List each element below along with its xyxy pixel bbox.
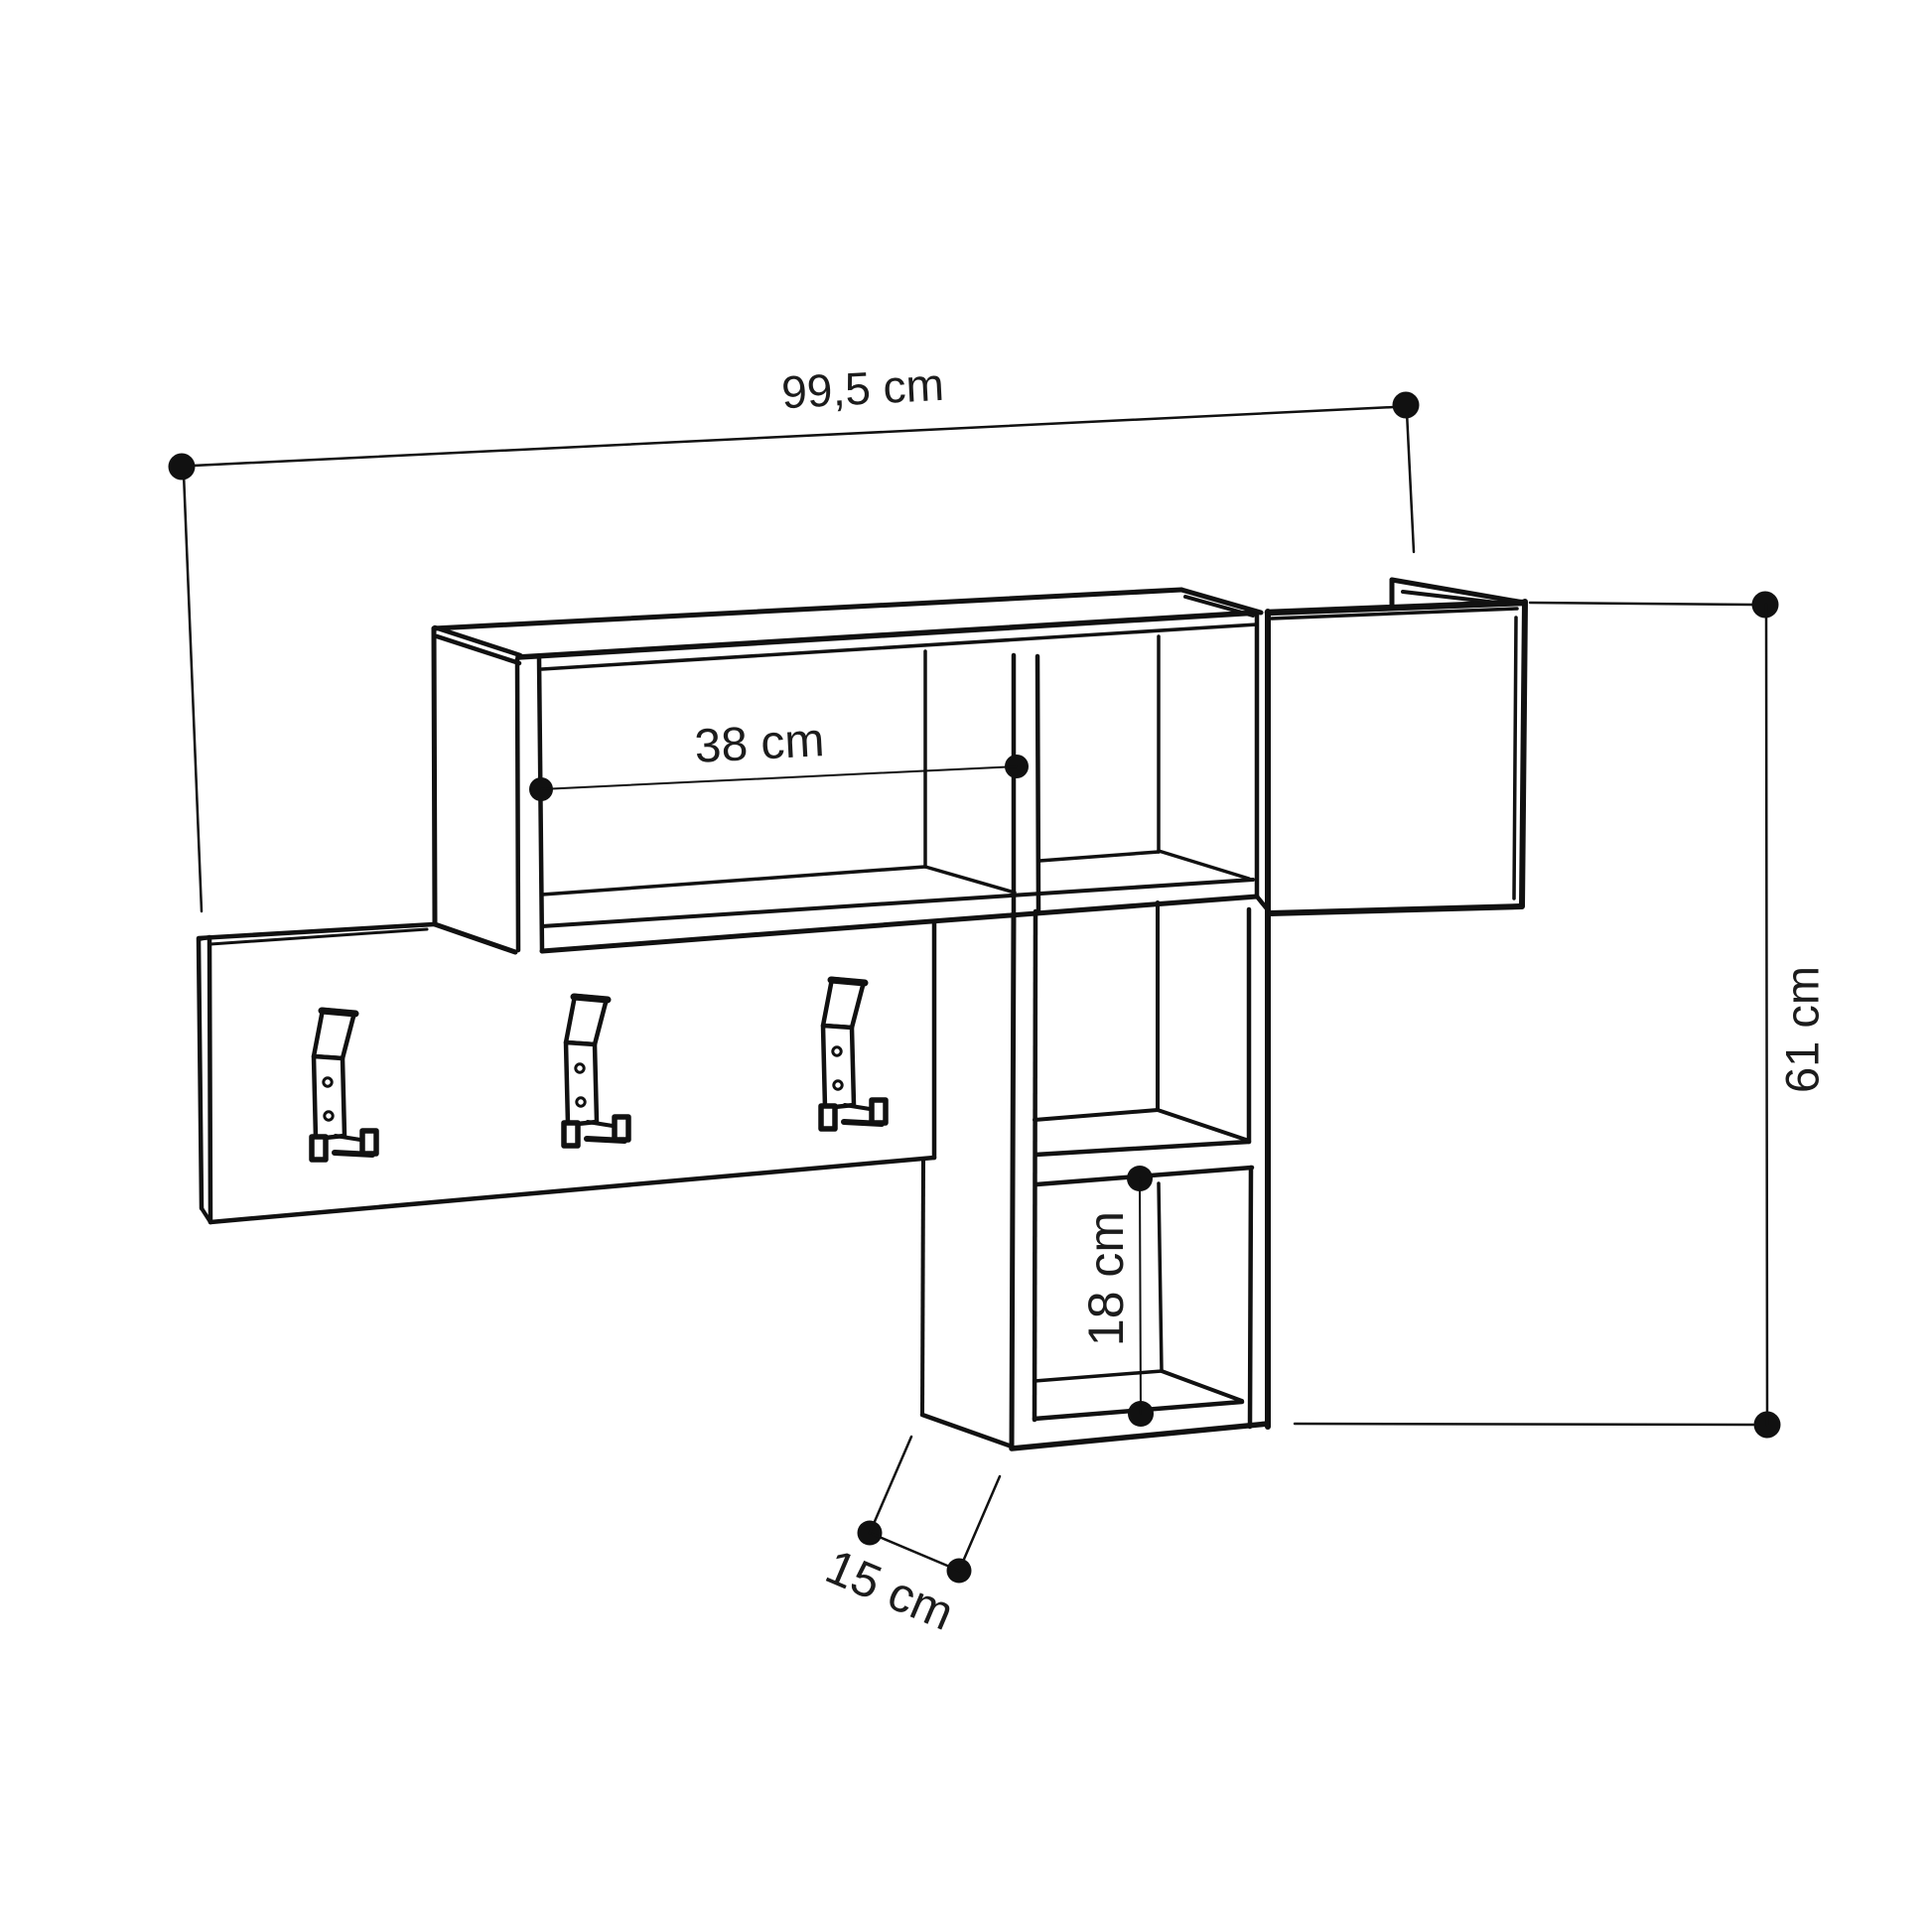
svg-text:61 cm: 61 cm <box>1776 966 1829 1093</box>
svg-text:99,5 cm: 99,5 cm <box>780 358 945 418</box>
svg-text:38 cm: 38 cm <box>693 714 825 773</box>
svg-text:18 cm: 18 cm <box>1078 1211 1134 1346</box>
